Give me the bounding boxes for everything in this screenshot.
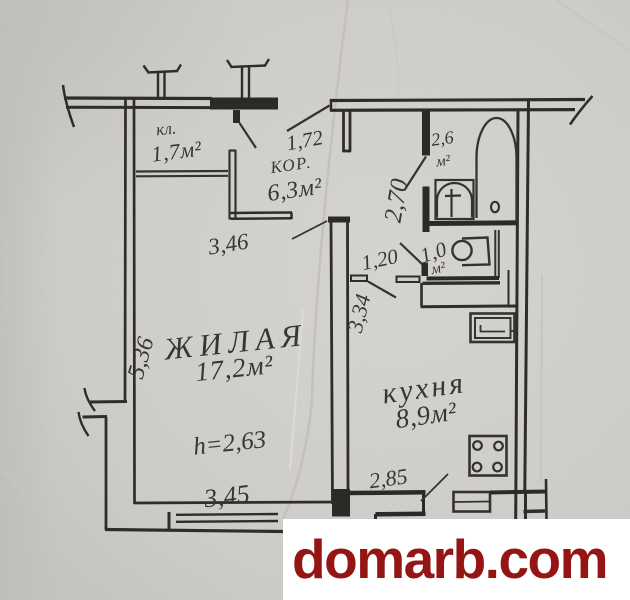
svg-text:м²: м² — [434, 153, 452, 171]
svg-text:2,85: 2,85 — [367, 463, 409, 493]
svg-text:3,45: 3,45 — [202, 479, 252, 513]
svg-text:кл.: кл. — [155, 118, 177, 139]
svg-text:domarb.com: domarb.com — [292, 528, 607, 590]
svg-text:2,6: 2,6 — [430, 127, 455, 150]
